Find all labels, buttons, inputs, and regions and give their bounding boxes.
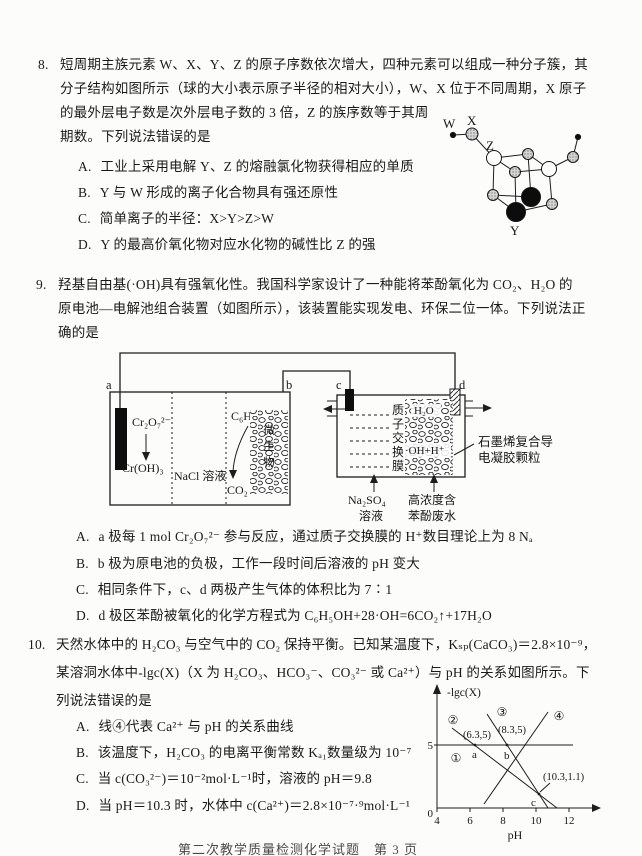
molecule-label-z: Z <box>486 138 494 153</box>
wastewater-label-line1: 高浓度含 <box>408 492 456 507</box>
molecule-label-x: X <box>467 113 477 128</box>
q10-option-a-text: 线④代表 Ca²⁺ 与 pH 的关系曲线 <box>99 719 294 734</box>
phenol-to-co2-arrow <box>233 426 248 472</box>
q9-option-c-text: 相同条件下，c、d 两极产生气体的体积比为 7∶1 <box>98 582 393 597</box>
na2so4-label-line1: Na₂SO₄ <box>348 493 386 507</box>
point-b-label: b <box>504 750 510 762</box>
atom-x-sphere <box>568 152 579 163</box>
curve-2-label: ② <box>448 713 459 727</box>
q10-line-1: 天然水体中的 H₂CO₃ 与空气中的 CO₂ 保持平衡。已知某温度下，Kₛₚ(C… <box>56 637 596 654</box>
q9-option-d-label: D. <box>76 608 90 623</box>
point-a-coords: (6.3,5) <box>463 730 491 741</box>
right-outflow-arrow-head <box>483 404 492 412</box>
q8-line-3: 的最外层电子数是次外层电子数的 3 倍，Z 的族序数等于其周 <box>60 105 429 122</box>
q8-option-b-text: Y 与 W 形成的离子化合物具有强还原性 <box>100 185 338 200</box>
q10-option-b-label: B. <box>76 745 89 760</box>
point-b-coords: (8.3,5) <box>498 725 526 736</box>
q8-option-c: C.简单离子的半径：X>Y>Z>W <box>78 211 274 228</box>
phenol-arrow-head <box>229 470 237 479</box>
q9-option-c: C.相同条件下，c、d 两极产生气体的体积比为 7∶1 <box>76 582 392 599</box>
q9-option-b-label: B. <box>76 556 89 571</box>
q9-option-d-text: d 极区苯酚被氧化的化学方程式为 C₆H₅OH+28·OH=6CO₂↑+17H₂… <box>99 608 492 623</box>
electrode-a-label: a <box>106 378 112 392</box>
q8-line-1: 短周期主族元素 W、X、Y、Z 的原子序数依次增大，四种元素可以组成一种分子簇，… <box>60 57 588 74</box>
membrane-char: 交 <box>392 430 404 445</box>
q8-line-4: 期数。下列说法错误的是 <box>60 129 211 146</box>
x-tick: 4 <box>434 815 440 827</box>
q10-number: 10. <box>28 637 45 654</box>
point-c-leader <box>540 783 550 792</box>
q10-ph-graph: -lgc(X) 5 0 4 6 8 10 12 pH ① ② ③ ④ (6.3,… <box>425 676 642 856</box>
q10-option-d-text: 当 pH＝10.3 时，水体中 c(Ca²⁺)＝2.8×10⁻⁷·⁹mol·L⁻… <box>99 798 411 813</box>
point-b <box>506 744 509 747</box>
curve-3-label: ③ <box>497 705 508 719</box>
x-tick: 10 <box>531 815 543 827</box>
atom-x-sphere <box>488 190 499 201</box>
x-tick: 6 <box>467 815 473 827</box>
q8-option-a-text: 工业上采用电解 Y、Z 的熔融氯化物获得相应的单质 <box>101 159 414 174</box>
chromium-hydroxide-label: Cr(OH)₃ <box>122 461 164 475</box>
atom-x-sphere <box>510 167 521 178</box>
wastewater-label-line2: 苯酚废水 <box>408 508 456 523</box>
point-c <box>538 793 541 796</box>
membrane-char: 换 <box>392 445 404 459</box>
q10-option-c: C.当 c(CO₃²⁻)＝10⁻²mol·L⁻¹时，溶液的 pH＝9.8 <box>76 771 372 788</box>
q9-option-a-label: A. <box>76 529 90 544</box>
q8-option-c-label: C. <box>78 211 91 226</box>
atom-x-sphere <box>547 199 558 210</box>
q9-option-c-label: C. <box>76 582 89 597</box>
radical-label: ·OH+H⁺ <box>405 445 445 457</box>
q10-option-d: D.当 pH＝10.3 时，水体中 c(Ca²⁺)＝2.8×10⁻⁷·⁹mol·… <box>76 798 410 815</box>
gel-label-leader <box>454 444 474 455</box>
atom-w-sphere <box>575 134 580 139</box>
q9-option-b-text: b 极为原电池的负极，工作一段时间后溶液的 pH 变大 <box>98 556 420 571</box>
atom-x-sphere <box>523 149 534 160</box>
x-tick: 12 <box>564 815 575 827</box>
membrane-char: 质 <box>392 403 404 417</box>
q9-cell-diagram: a b c d Cr₂O₇²⁻ Cr(OH)₃ NaCl 溶液 C₆H₅OH C… <box>98 346 628 532</box>
q8-option-d-text: Y 的最高价氧化物对应水化物的碱性比 Z 的强 <box>101 237 376 252</box>
proton-membrane-lines <box>350 415 390 467</box>
electrode-c-label: c <box>336 378 342 392</box>
dichromate-label: Cr₂O₇²⁻ <box>132 415 171 429</box>
atom-x-sphere <box>466 128 478 140</box>
na2so4-arrow-head <box>370 474 378 483</box>
atom-w-sphere <box>450 132 455 137</box>
q9-line-3: 确的是 <box>58 325 99 342</box>
exam-page: 8. 短周期主族元素 W、X、Y、Z 的原子序数依次增大，四种元素可以组成一种分… <box>0 0 642 856</box>
microbe-char: 物 <box>263 455 275 469</box>
x-axis-label: pH <box>508 828 523 842</box>
curve-4-label: ④ <box>554 709 565 723</box>
q10-line-3: 列说法错误的是 <box>56 693 152 710</box>
q8-option-b: B.Y 与 W 形成的离子化合物具有强还原性 <box>78 185 338 202</box>
q10-option-c-text: 当 c(CO₃²⁻)＝10⁻²mol·L⁻¹时，溶液的 pH＝9.8 <box>98 771 372 786</box>
microbe-char: 生 <box>263 439 275 453</box>
q8-option-c-text: 简单离子的半径：X>Y>Z>W <box>100 211 274 226</box>
q10-option-b: B.该温度下，H₂CO₃ 的电离平衡常数 Kₐ₁数量级为 10⁻⁷ <box>76 745 412 762</box>
x-axis-arrow <box>592 804 601 812</box>
q9-number: 9. <box>36 277 47 294</box>
q10-option-a-label: A. <box>76 719 90 734</box>
water-label: H₂O <box>414 405 434 417</box>
q9-option-d: D.d 极区苯酚被氧化的化学方程式为 C₆H₅OH+28·OH=6CO₂↑+17… <box>76 608 492 625</box>
q8-molecule-figure: W X Z Y <box>440 108 605 248</box>
molecule-atoms <box>450 128 580 222</box>
q8-option-d-label: D. <box>78 237 92 252</box>
nacl-label: NaCl 溶液 <box>174 468 226 483</box>
na2so4-label-line2: 溶液 <box>359 508 383 523</box>
q8-option-a: A.工业上采用电解 Y、Z 的熔融氯化物获得相应的单质 <box>78 159 414 176</box>
molecule-label-y: Y <box>510 223 520 238</box>
reduction-arrow-head <box>142 452 150 461</box>
gel-label-line1: 石墨烯复合导 <box>478 434 553 449</box>
q9-option-a-text: a 极每 1 mol Cr₂O₇²⁻ 参与反应，通过质子交换膜的 H⁺数目理论上… <box>99 529 533 544</box>
gel-label-line2: 电凝胶颗粒 <box>478 450 541 465</box>
q9-line-1: 羟基自由基(·OH)具有强氧化性。我国科学家设计了一种能将苯酚氧化为 CO₂、H… <box>58 277 573 294</box>
atom-y-sphere <box>507 203 526 222</box>
q9-line-2: 原电池—电解池组合装置（如图所示），该装置能实现发电、环保二位一体。下列说法正 <box>58 301 586 318</box>
q8-number: 8. <box>38 57 49 74</box>
x-tick: 8 <box>500 815 506 827</box>
q8-option-d: D.Y 的最高价氧化物对应水化物的碱性比 Z 的强 <box>78 237 376 254</box>
co2-label: CO₂ <box>227 483 248 497</box>
q9-option-a: A.a 极每 1 mol Cr₂O₇²⁻ 参与反应，通过质子交换膜的 H⁺数目理… <box>76 529 533 546</box>
curve-1-label: ① <box>451 751 462 765</box>
q10-option-c-label: C. <box>76 771 89 786</box>
q10-option-d-label: D. <box>76 798 90 813</box>
molecule-label-w: W <box>443 116 456 131</box>
q10-option-b-text: 该温度下，H₂CO₃ 的电离平衡常数 Kₐ₁数量级为 10⁻⁷ <box>98 745 412 760</box>
origin-label: 0 <box>428 808 434 820</box>
q8-option-a-label: A. <box>78 159 92 174</box>
point-c-label: c <box>531 797 536 809</box>
y-tick-5: 5 <box>428 740 434 752</box>
q10-option-a: A.线④代表 Ca²⁺ 与 pH 的关系曲线 <box>76 719 294 736</box>
electrode-b-label: b <box>286 378 292 392</box>
y-axis-label: -lgc(X) <box>447 687 481 699</box>
electrode-c-bar <box>345 389 354 411</box>
q9-option-b: B.b 极为原电池的负极，工作一段时间后溶液的 pH 变大 <box>76 556 420 573</box>
membrane-char: 膜 <box>392 459 404 473</box>
atom-z-sphere <box>542 162 557 177</box>
q8-option-b-label: B. <box>78 185 91 200</box>
microbe-char: 微 <box>263 423 275 437</box>
wastewater-arrow-head <box>430 474 438 483</box>
q8-line-2: 分子结构如图所示（球的大小表示原子半径的相对大小），W、X 位于不同周期，X 原… <box>60 81 586 98</box>
atom-y-sphere <box>522 188 541 207</box>
y-axis-arrow <box>433 684 441 694</box>
point-c-coords: (10.3,1.1) <box>543 772 585 783</box>
page-footer: 第二次教学质量检测化学试题 第 3 页 <box>178 839 418 856</box>
left-outflow-arrow-head <box>323 405 332 413</box>
point-a <box>474 744 477 747</box>
membrane-char: 子 <box>392 417 404 431</box>
point-a-label: a <box>472 749 477 761</box>
